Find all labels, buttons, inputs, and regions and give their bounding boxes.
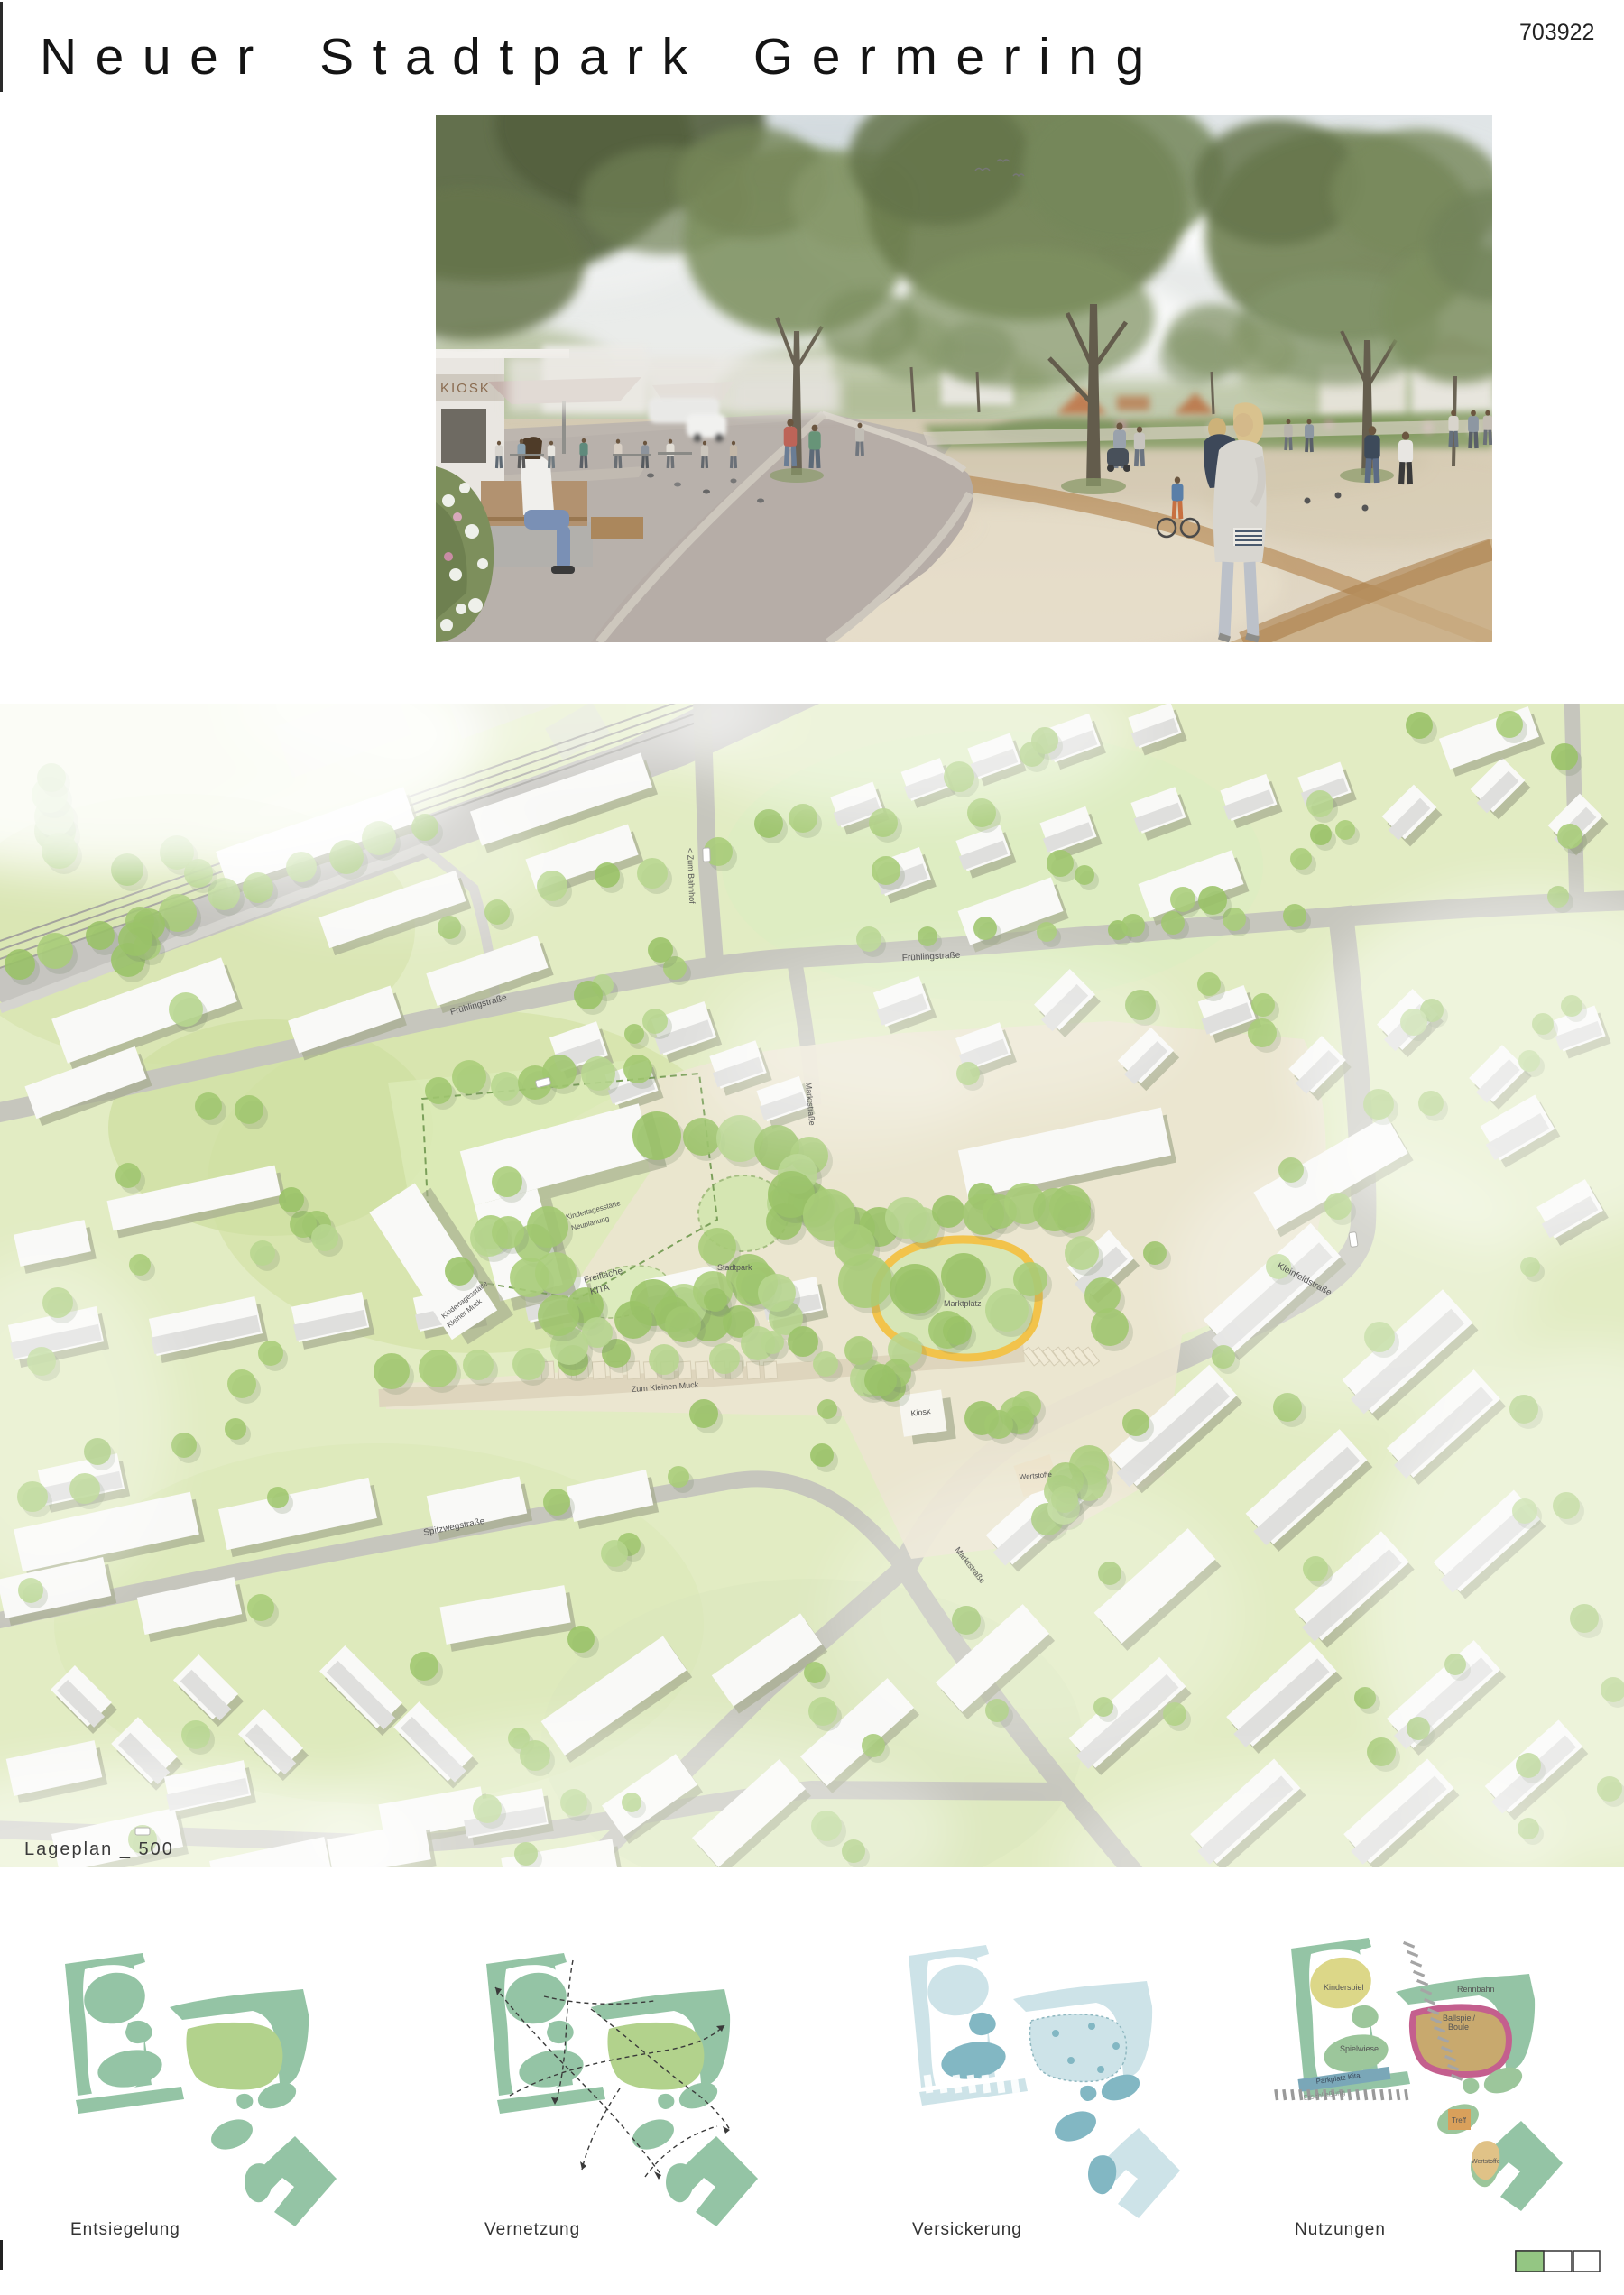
svg-text:Nutzungen: Nutzungen [1295, 2220, 1386, 2239]
svg-text:Boule: Boule [1448, 2023, 1469, 2032]
svg-text:Wertstoffe: Wertstoffe [1472, 2159, 1500, 2165]
svg-text:Treff: Treff [1452, 2116, 1467, 2124]
svg-text:Spielwiese: Spielwiese [1340, 2044, 1379, 2053]
svg-text:Entsiegelung: Entsiegelung [70, 2220, 180, 2239]
svg-text:Rennbahn: Rennbahn [1457, 1985, 1495, 1994]
svg-text:Vernetzung: Vernetzung [484, 2220, 580, 2239]
svg-text:Kinderspiel: Kinderspiel [1324, 1983, 1364, 1992]
svg-text:Versickerung: Versickerung [912, 2220, 1022, 2239]
svg-text:Ballspiel/: Ballspiel/ [1443, 2014, 1476, 2023]
